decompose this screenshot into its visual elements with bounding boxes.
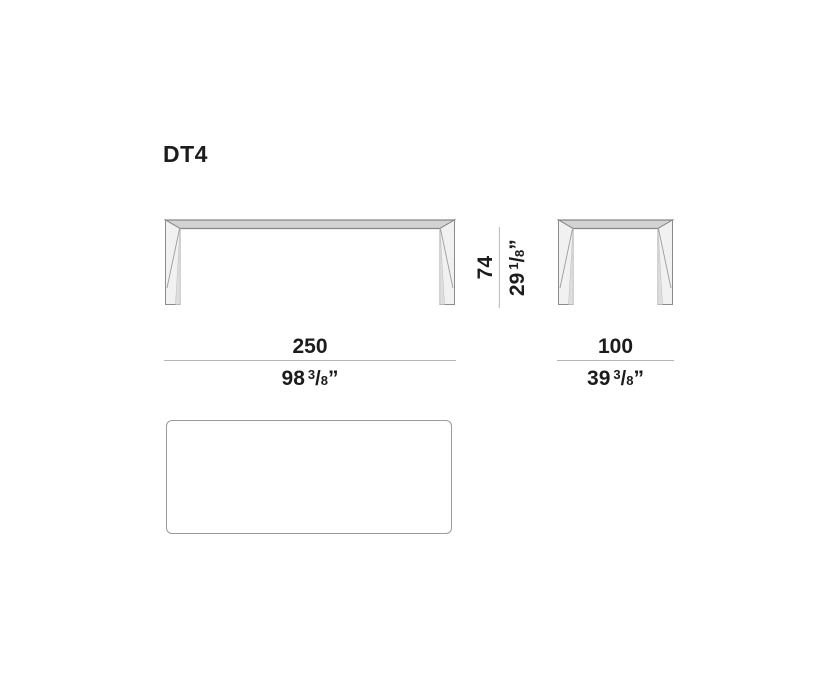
height-frac-numerator: 1 xyxy=(506,263,521,270)
depth-dimension: 100 393/8” xyxy=(557,336,674,393)
width-dimension: 250 983/8” xyxy=(164,336,456,393)
depth-inches-label: 393/8” xyxy=(557,361,674,393)
side-tabletop xyxy=(559,220,673,229)
product-code-title: DT4 xyxy=(163,141,208,168)
width-cm-label: 250 xyxy=(164,336,456,360)
depth-inch-whole: 39 xyxy=(587,367,610,390)
height-inch-mark: ” xyxy=(506,239,529,250)
depth-cm-label: 100 xyxy=(557,336,674,360)
height-cm-label: 74 xyxy=(475,227,499,308)
height-frac-slash: / xyxy=(507,257,529,263)
front-elevation-view xyxy=(164,218,456,306)
front-tabletop xyxy=(166,220,455,229)
height-inches-label: 291/8” xyxy=(500,227,532,308)
height-frac-denominator: 8 xyxy=(512,250,527,257)
side-elevation-view xyxy=(557,218,674,306)
depth-frac-numerator: 3 xyxy=(613,367,620,382)
width-frac-denominator: 8 xyxy=(321,373,328,388)
width-inch-whole: 98 xyxy=(282,367,305,390)
width-inch-mark: ” xyxy=(328,367,339,390)
height-inch-whole: 29 xyxy=(506,273,529,296)
top-plan-view xyxy=(166,420,452,534)
height-dimension: 74 291/8” xyxy=(475,227,532,308)
width-inches-label: 983/8” xyxy=(164,361,456,393)
spec-sheet: DT4 74 291/8” 250 983/8” 100 393/8” xyxy=(0,0,840,679)
depth-inch-mark: ” xyxy=(633,367,644,390)
